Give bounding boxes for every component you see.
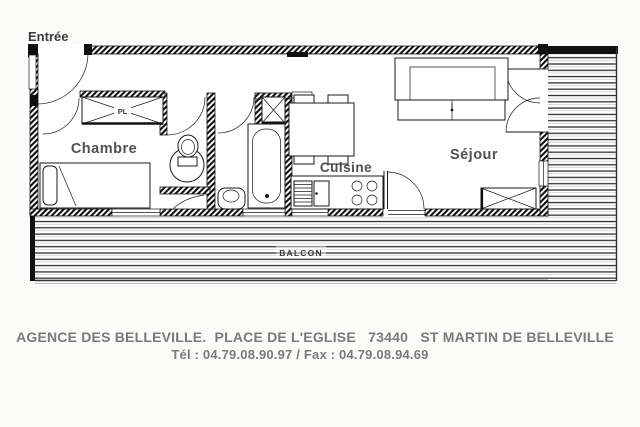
washbasin-bowl xyxy=(178,135,198,157)
kitchen-counter xyxy=(291,176,383,209)
terrace-decking xyxy=(548,53,616,280)
bed xyxy=(40,163,150,208)
pl-closet: PL xyxy=(82,97,163,124)
side-terrace xyxy=(543,46,618,281)
floor-plan-drawing: BALCON xyxy=(0,0,640,427)
terrace-top-edge xyxy=(543,46,618,54)
sofa-handle-knob xyxy=(451,109,454,112)
wall-bottom-seg3 xyxy=(328,209,383,216)
sejour-closet xyxy=(481,188,536,209)
toilet-base xyxy=(218,188,245,209)
floor-plan-page: BALCON xyxy=(0,0,640,427)
cuisine-label: Cuisine xyxy=(320,160,372,175)
wall-right-seg2 xyxy=(540,132,548,162)
balcon-label: BALCON xyxy=(279,248,323,258)
sofa xyxy=(395,58,508,120)
bathtub-drain xyxy=(265,194,269,198)
wall-bottom-seg1 xyxy=(30,209,112,216)
wall-bottom-seg2 xyxy=(160,209,243,216)
bathroom-closet xyxy=(262,97,285,123)
table-top xyxy=(289,103,354,156)
corner-top-right xyxy=(538,44,548,54)
bed-pillow xyxy=(43,166,57,205)
bedroom-door-jamb xyxy=(30,95,38,106)
kitchen-wall-step xyxy=(287,52,308,57)
balcony: BALCON xyxy=(30,209,616,284)
wall-right-seg3 xyxy=(540,186,548,216)
refrigerator-handle xyxy=(315,192,318,195)
dining-table xyxy=(289,95,354,164)
chambre-label: Chambre xyxy=(71,141,137,157)
entry-door-leaf xyxy=(29,55,36,89)
washbasin-shelf xyxy=(178,157,197,166)
wall-top xyxy=(88,46,545,54)
sejour-label: Séjour xyxy=(450,147,498,163)
wall-bottom-seg4 xyxy=(425,209,548,216)
balcony-left-post xyxy=(30,209,35,281)
pl-label: PL xyxy=(118,107,128,116)
agency-phone-line: Tél : 04.79.08.90.97 / Fax : 04.79.08.94… xyxy=(0,347,600,362)
sofa-back xyxy=(395,58,508,100)
toilet xyxy=(218,188,245,209)
wall-pl-closet-top xyxy=(80,91,165,97)
agency-address-line: AGENCE DES BELLEVILLE. PLACE DE L'EGLISE… xyxy=(0,329,630,345)
wall-washroom-nook xyxy=(160,187,210,194)
entree-label: Entrée xyxy=(28,29,68,44)
wall-right-seg1 xyxy=(540,54,548,69)
bathtub xyxy=(248,124,285,208)
